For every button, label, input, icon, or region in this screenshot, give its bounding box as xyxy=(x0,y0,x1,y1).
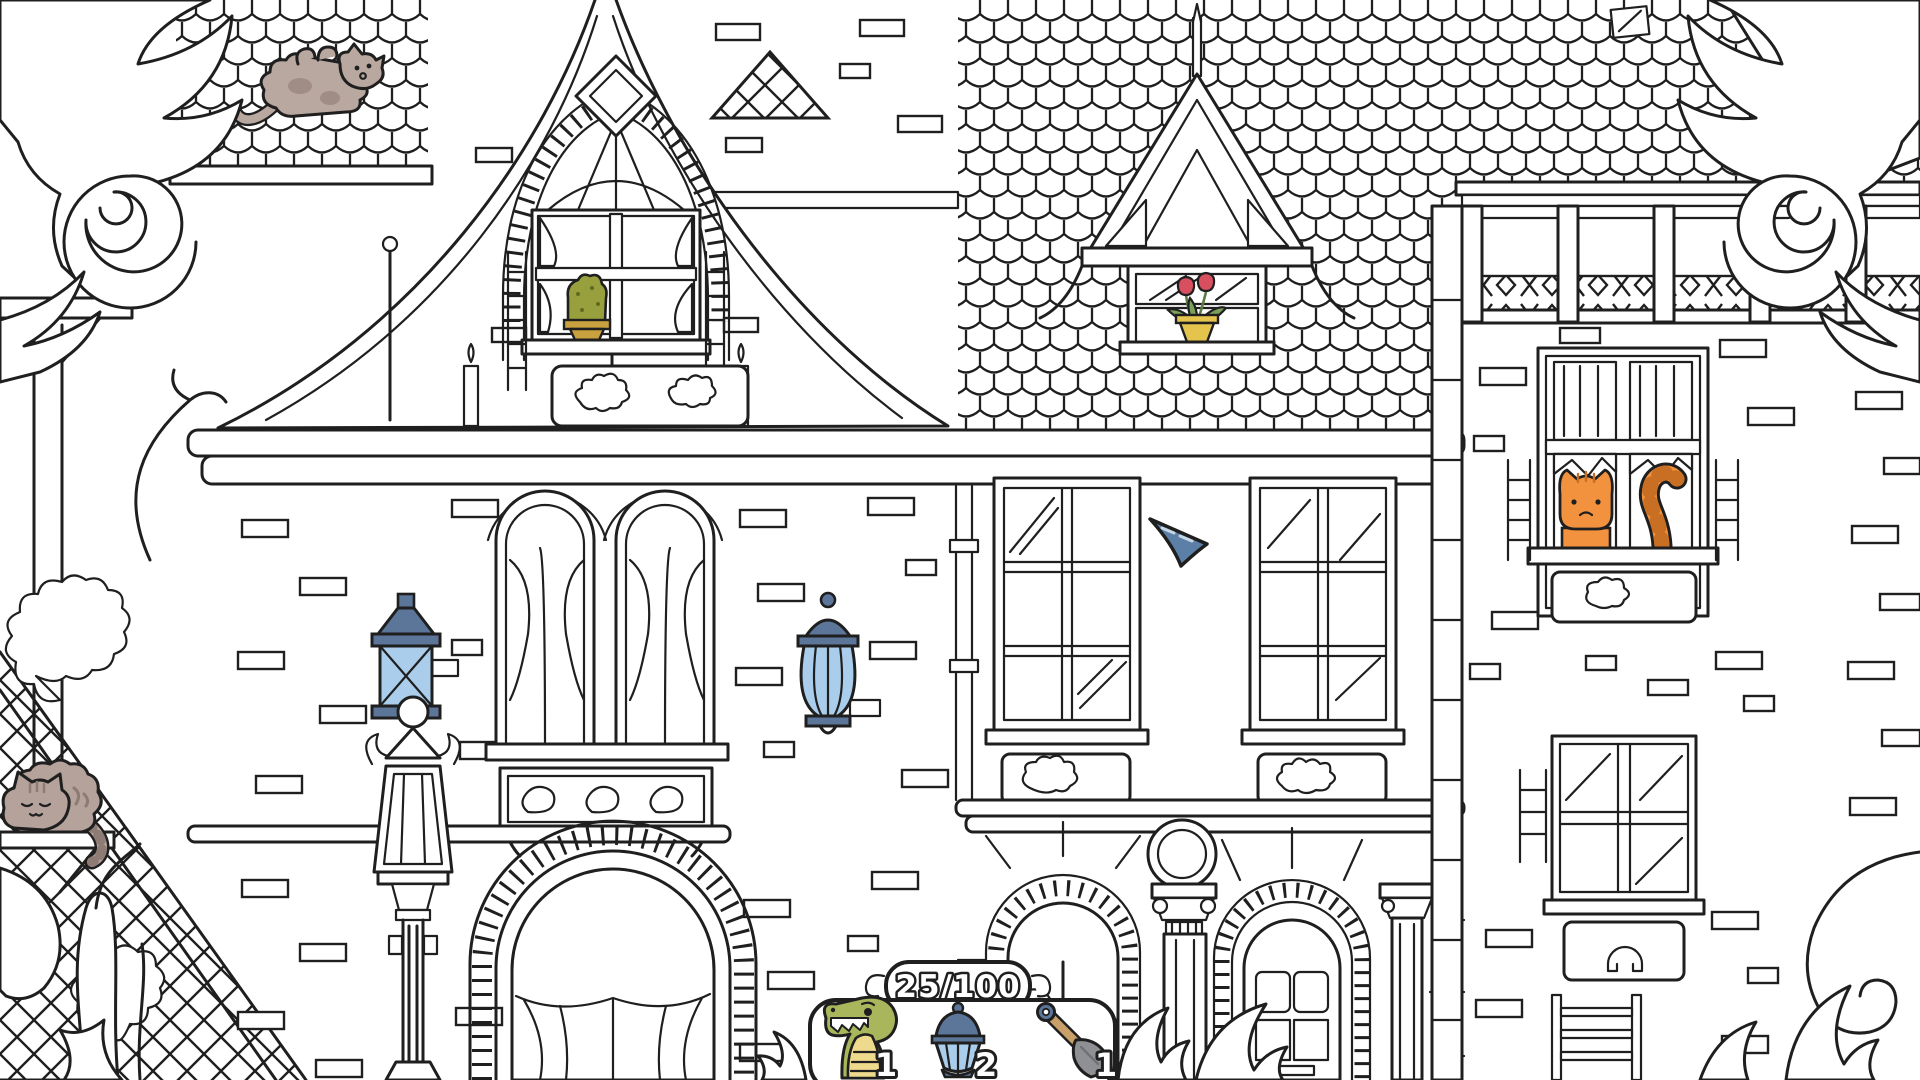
left-stringcourse xyxy=(188,826,730,842)
cat-window xyxy=(1508,348,1738,622)
center-window-right xyxy=(1242,478,1404,744)
roof-strip-top-middle xyxy=(690,0,958,208)
bat-relief-panel xyxy=(552,366,748,426)
center-window-left xyxy=(986,478,1148,744)
hidden-object-scene[interactable]: 25/100 1 2 1 xyxy=(0,0,1920,1080)
game-stage: 25/100 1 2 1 xyxy=(0,0,1920,1080)
pennant-icon xyxy=(1611,6,1650,38)
main-cornice xyxy=(188,430,1464,484)
shovel-count: 1 xyxy=(1095,1046,1117,1080)
cactus-in-window[interactable] xyxy=(564,275,610,340)
crocodile-count: 1 xyxy=(875,1046,897,1080)
right-quoin xyxy=(1432,206,1462,1080)
lantern-count: 2 xyxy=(975,1046,997,1080)
